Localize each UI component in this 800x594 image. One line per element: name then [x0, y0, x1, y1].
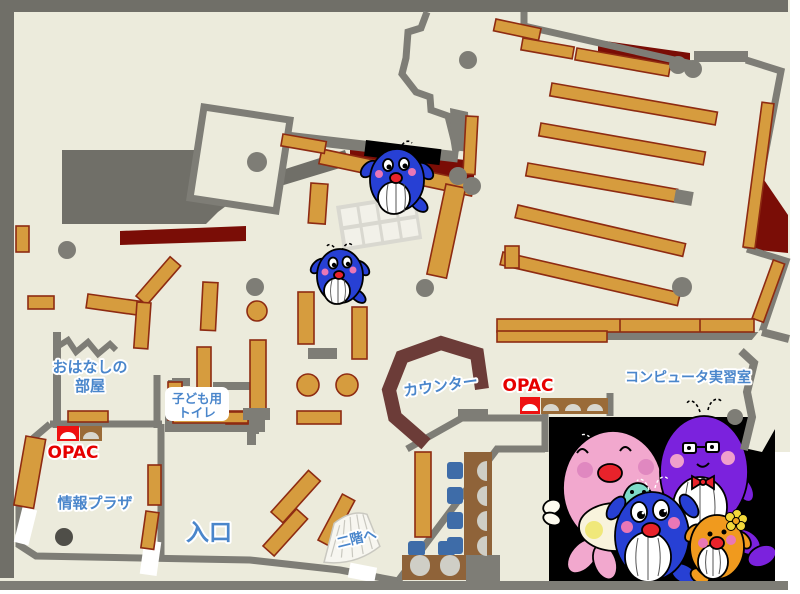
opac-terminals-right	[520, 397, 608, 414]
label-entrance: 入口	[186, 520, 232, 546]
library-floor-map-page: おはなしの 部屋 子ども用 トイレ OPAC 情報プラザ 入口 カウンター OP…	[0, 0, 800, 590]
round-table	[336, 374, 358, 396]
pillar-icon	[459, 51, 477, 69]
pillar-icon	[55, 528, 73, 546]
pillar-icon	[416, 279, 434, 297]
round-table	[297, 374, 319, 396]
round-table	[247, 301, 267, 321]
label-kids-toilet-1: 子ども用	[172, 391, 222, 406]
pillar-icon	[58, 241, 76, 259]
label-info-plaza: 情報プラザ	[57, 494, 132, 512]
pillar-icon	[463, 177, 481, 195]
label-opac-left: OPAC	[48, 443, 99, 463]
library-floor-map: おはなしの 部屋 子ども用 トイレ OPAC 情報プラザ 入口 カウンター OP…	[0, 0, 800, 590]
pillar-icon	[247, 152, 267, 172]
pillar-icon	[727, 409, 743, 425]
pillar-icon	[246, 278, 264, 296]
label-computer-room: コンピュータ実習室	[625, 369, 751, 386]
mascot-panel	[541, 399, 780, 589]
outer-bottom-bar	[0, 581, 788, 590]
rotated-room	[190, 107, 290, 211]
label-kids-toilet-2: トイレ	[178, 405, 216, 420]
pillar-icon	[684, 60, 702, 78]
label-story-room-2: 部屋	[75, 377, 105, 395]
label-story-room-1: おはなしの	[52, 358, 127, 376]
pillar-icon	[672, 277, 692, 297]
label-opac-right: OPAC	[503, 376, 554, 396]
